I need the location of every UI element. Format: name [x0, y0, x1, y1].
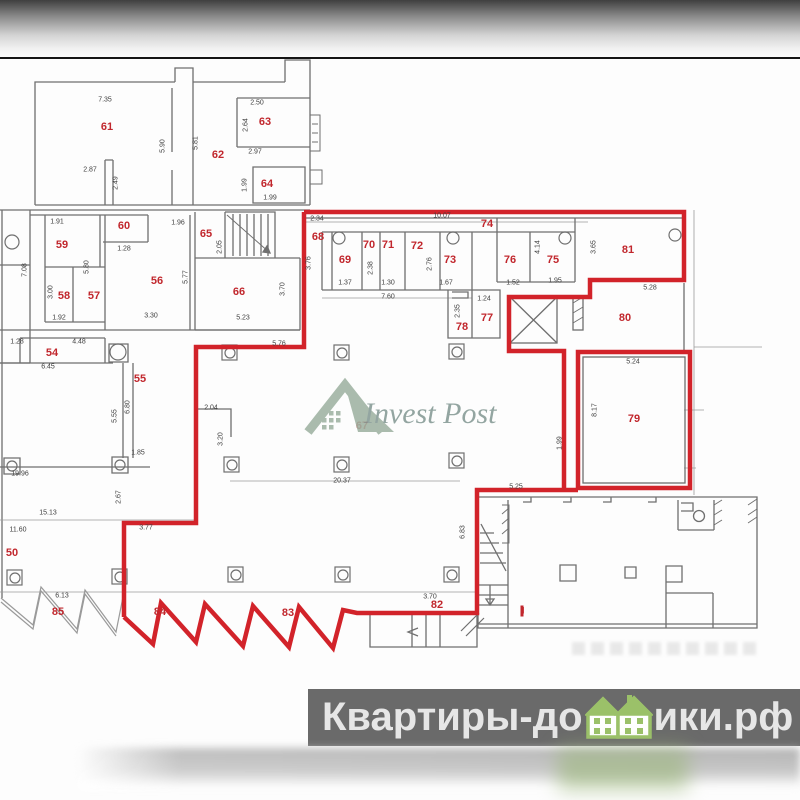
room-label-63: 63	[259, 116, 271, 128]
room-label-82: 82	[431, 599, 443, 611]
dimension-label: 2.76	[427, 257, 434, 271]
dimension-label: 1.92	[52, 315, 66, 322]
dimension-label: 15.13	[39, 510, 57, 517]
dimension-label: 3.77	[139, 525, 153, 532]
dimension-label: 1.67	[439, 280, 453, 287]
room-label-55: 55	[134, 373, 146, 385]
dimension-label: 6.83	[460, 525, 467, 539]
room-label-71: 71	[382, 239, 394, 251]
room-label-84: 84	[154, 606, 166, 618]
dimension-label: 1.99	[557, 436, 564, 450]
houses-icon	[585, 693, 653, 739]
dimension-label: 7.60	[381, 294, 395, 301]
room-label-75: 75	[547, 254, 559, 266]
dimension-label: 2.64	[243, 118, 250, 132]
dimension-label: 3.20	[218, 432, 225, 446]
banner-text-left: Квартиры-до	[322, 695, 583, 740]
room-label-54: 54	[46, 347, 58, 359]
dimension-label: 3.00	[48, 285, 55, 299]
dimension-label: 5.25	[509, 484, 523, 491]
stairs-lower	[478, 524, 508, 605]
dimension-label: 8.17	[592, 403, 599, 417]
dimension-label: 4.48	[72, 339, 86, 346]
room-label-61: 61	[101, 121, 113, 133]
dimension-label: 2.87	[83, 167, 97, 174]
invest-post-brand-text: Invest Post	[364, 397, 496, 431]
room-label-77: 77	[481, 312, 493, 324]
dimension-label: 5.24	[626, 359, 640, 366]
dimension-label: 2.35	[455, 304, 462, 318]
dimension-label: 3.70	[280, 282, 287, 296]
dimension-label: 4.14	[535, 240, 542, 254]
elevator-shaft-icon	[510, 297, 583, 343]
room-label-68: 68	[312, 231, 324, 243]
dimension-label: 3.70	[423, 594, 437, 601]
room-label-58: 58	[58, 290, 70, 302]
dimension-label: 19.96	[11, 471, 29, 478]
dimension-label: 1.91	[50, 219, 64, 226]
room-label-74: 74	[481, 218, 493, 230]
dimension-label: 3.30	[144, 313, 158, 320]
room-label-59: 59	[56, 239, 68, 251]
room-label-II: II	[520, 606, 523, 617]
reflection-green-blob	[558, 748, 688, 790]
floorplan-photo: 6162636459606556585766545550858483826869…	[0, 0, 800, 800]
dimension-label: 5.55	[112, 409, 119, 423]
room-label-62: 62	[212, 149, 224, 161]
dimension-label: 1.30	[381, 280, 395, 287]
room-label-78: 78	[456, 321, 468, 333]
dimension-label: 5.80	[84, 260, 91, 274]
room-label-72: 72	[411, 240, 423, 252]
room-label-66: 66	[233, 286, 245, 298]
room-label-57: 57	[88, 290, 100, 302]
photo-bottom-reflection	[78, 748, 800, 790]
room-label-85: 85	[52, 606, 64, 618]
dimension-label: 7.35	[98, 97, 112, 104]
room-label-56: 56	[151, 275, 163, 287]
dimension-label: 5.28	[643, 285, 657, 292]
room-label-70: 70	[363, 239, 375, 251]
footer-banner: Квартиры-до ики.рф	[308, 689, 800, 746]
dimension-label: 1.28	[10, 339, 24, 346]
dimension-label: 6.45	[41, 364, 55, 371]
invest-post-watermark: Invest Post	[298, 375, 568, 437]
banner-text-right: ики.рф	[654, 695, 794, 740]
dimension-label: 11.60	[10, 527, 27, 534]
room-label-79: 79	[628, 413, 640, 425]
dimension-label: 10.07	[433, 213, 451, 220]
room-label-73: 73	[444, 254, 456, 266]
room-label-50: 50	[6, 547, 18, 559]
dimension-label: 7.08	[22, 263, 29, 277]
dimension-label: 6.13	[55, 593, 69, 600]
dimension-label: 3.76	[306, 256, 313, 270]
dimension-label: 1.37	[338, 280, 352, 287]
dimension-label: 1.99	[263, 195, 277, 202]
dimension-label: 1.85	[131, 450, 145, 457]
room-label-60: 60	[118, 220, 130, 232]
room-label-83: 83	[282, 607, 294, 619]
dimension-label: 3.65	[591, 240, 598, 254]
dimension-label: 1.28	[117, 246, 131, 253]
dimension-label: 2.04	[204, 405, 218, 412]
room-label-80: 80	[619, 312, 631, 324]
dimension-label: 2.34	[310, 216, 324, 223]
room-label-64: 64	[261, 178, 273, 190]
dimension-label: 5.23	[236, 315, 250, 322]
room-label-76: 76	[504, 254, 516, 266]
dimension-label: 5.81	[193, 136, 200, 150]
dimension-label: 2.50	[250, 100, 264, 107]
dimension-label: 1.95	[548, 278, 562, 285]
faint-watermark-remnant	[572, 642, 762, 655]
dimension-label: 20.37	[333, 478, 351, 485]
dimension-label: 2.05	[217, 240, 224, 254]
dimension-label: 1.52	[506, 280, 520, 287]
dimension-label: 2.97	[248, 149, 262, 156]
dimension-label: 5.77	[183, 270, 190, 284]
room-label-65: 65	[200, 228, 212, 240]
dimension-label: 5.76	[272, 341, 286, 348]
dimension-label: 1.96	[171, 220, 185, 227]
dimension-label: 6.80	[125, 400, 132, 414]
dimension-label: 2.49	[113, 176, 120, 190]
dimension-label: 1.24	[477, 296, 491, 303]
room-label-81: 81	[622, 244, 634, 256]
dimension-label: 2.67	[116, 490, 123, 504]
dimension-label: 5.90	[160, 139, 167, 153]
dimension-label: 2.38	[368, 261, 375, 275]
dimension-label: 1.99	[242, 178, 249, 192]
room-label-69: 69	[339, 254, 351, 266]
